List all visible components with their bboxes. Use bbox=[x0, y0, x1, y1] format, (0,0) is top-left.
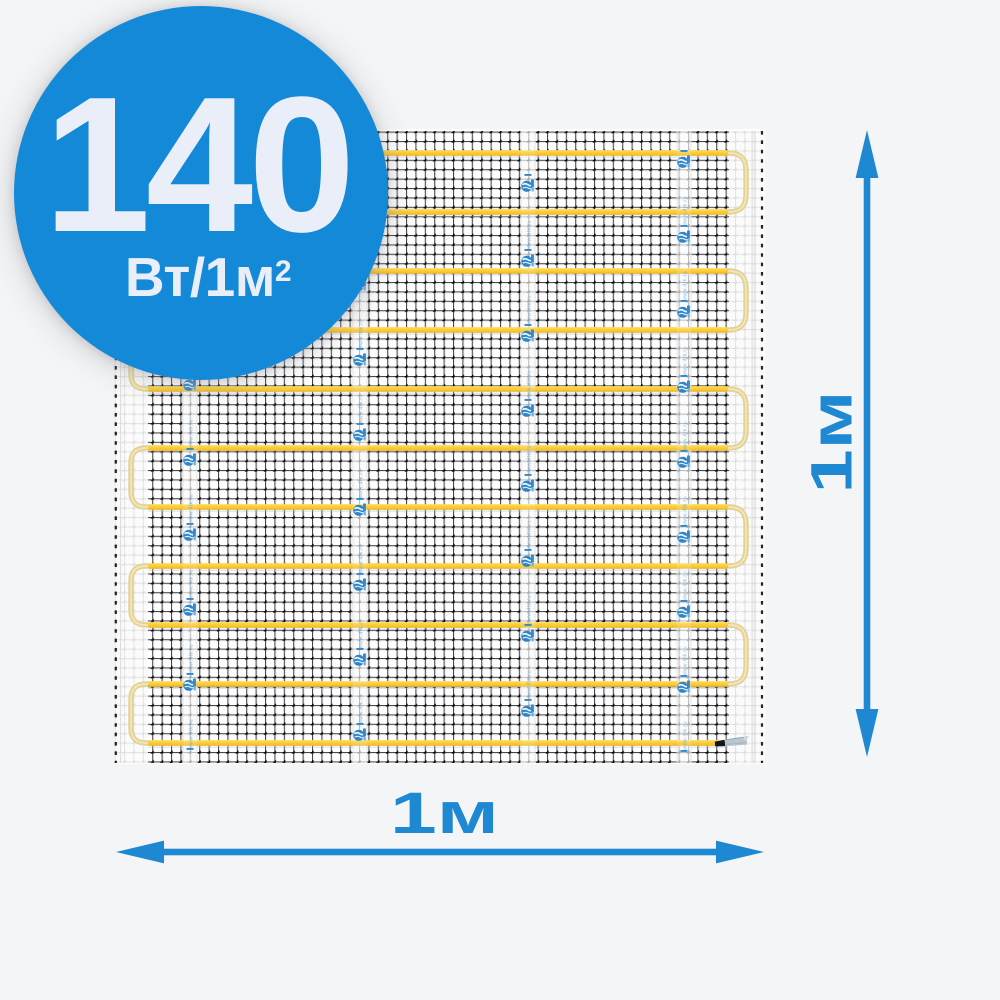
svg-text:www.4tk.ru: www.4tk.ru bbox=[527, 670, 533, 701]
svg-text:www.4tk.ru: www.4tk.ru bbox=[683, 571, 689, 602]
svg-text:www.4tk.ru: www.4tk.ru bbox=[189, 419, 195, 450]
svg-text:www.4tk.ru: www.4tk.ru bbox=[359, 619, 365, 650]
svg-text:www.4tk.ru: www.4tk.ru bbox=[683, 721, 689, 752]
svg-text:1м: 1м bbox=[390, 782, 499, 846]
svg-text:www.4tk.ru: www.4tk.ru bbox=[683, 646, 689, 677]
svg-text:www.4tk.ru: www.4tk.ru bbox=[189, 719, 195, 750]
svg-text:Вт/1м2: Вт/1м2 bbox=[125, 246, 291, 308]
svg-text:www.4tk.ru: www.4tk.ru bbox=[683, 346, 689, 377]
svg-text:www.4tk.ru: www.4tk.ru bbox=[189, 494, 195, 525]
svg-text:www.4tk.ru: www.4tk.ru bbox=[683, 421, 689, 452]
svg-text:www.4tk.ru: www.4tk.ru bbox=[527, 370, 533, 401]
svg-text:www.4tk.ru: www.4tk.ru bbox=[359, 694, 365, 725]
svg-text:www.4tk.ru: www.4tk.ru bbox=[359, 319, 365, 350]
svg-text:www.4tk.ru: www.4tk.ru bbox=[189, 569, 195, 600]
svg-text:www.4tk.ru: www.4tk.ru bbox=[527, 295, 533, 326]
svg-text:www.4tk.ru: www.4tk.ru bbox=[683, 196, 689, 227]
svg-text:www.4tk.ru: www.4tk.ru bbox=[359, 469, 365, 500]
svg-text:www.4tk.ru: www.4tk.ru bbox=[683, 271, 689, 302]
svg-text:www.4tk.ru: www.4tk.ru bbox=[683, 496, 689, 527]
svg-text:140: 140 bbox=[43, 56, 350, 272]
svg-text:www.4tk.ru: www.4tk.ru bbox=[359, 544, 365, 575]
svg-text:1м: 1м bbox=[799, 391, 864, 494]
svg-text:www.4tk.ru: www.4tk.ru bbox=[359, 394, 365, 425]
svg-text:www.4tk.ru: www.4tk.ru bbox=[527, 595, 533, 626]
svg-text:www.4tk.ru: www.4tk.ru bbox=[189, 644, 195, 675]
svg-text:www.4tk.ru: www.4tk.ru bbox=[527, 520, 533, 551]
svg-text:www.4tk.ru: www.4tk.ru bbox=[527, 445, 533, 476]
svg-text:www.4tk.ru: www.4tk.ru bbox=[527, 220, 533, 251]
